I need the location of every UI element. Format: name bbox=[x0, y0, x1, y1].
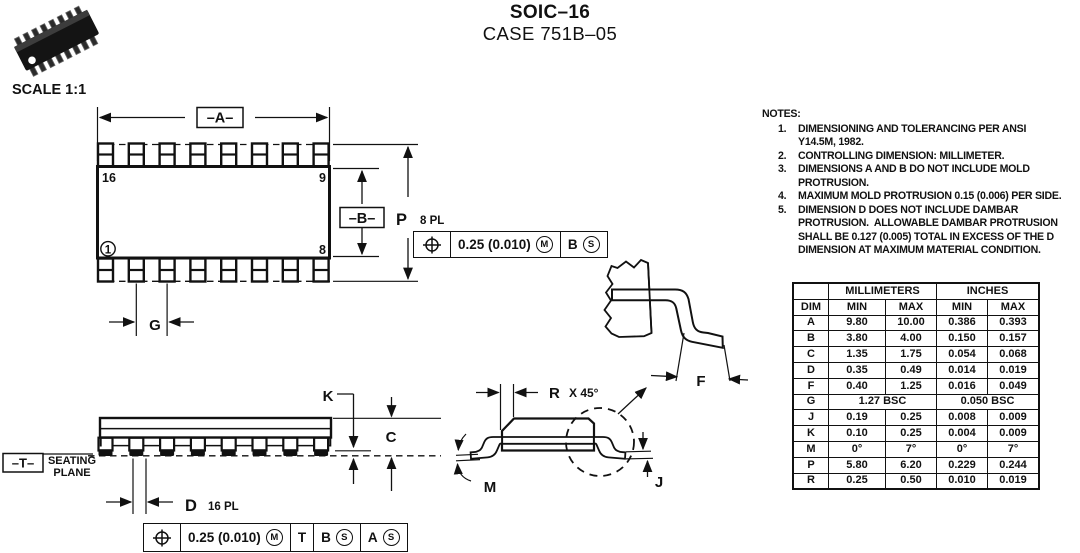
fcf-datum-b-cell: B S bbox=[561, 232, 607, 257]
table-header-units: MILLIMETERS INCHES bbox=[793, 283, 1039, 299]
side-view-drawing bbox=[3, 394, 441, 514]
note-text: DIMENSION D DOES NOT INCLUDE DAMBAR PROT… bbox=[798, 204, 1080, 258]
end-view-body bbox=[502, 419, 594, 451]
position-tolerance-icon bbox=[414, 232, 451, 257]
pin-1-label: 1 bbox=[105, 245, 112, 257]
dim-a-label: –A– bbox=[207, 111, 234, 127]
detail-leader-arrow bbox=[618, 388, 646, 414]
note-number: 4. bbox=[778, 190, 798, 204]
rfs-modifier-icon: S bbox=[583, 236, 600, 253]
datum-a: A bbox=[368, 530, 378, 545]
dim-g-label: G bbox=[149, 317, 161, 334]
notes-section: NOTES: 1.DIMENSIONING AND TOLERANCING PE… bbox=[762, 108, 1080, 258]
note-item: 4.MAXIMUM MOLD PROTRUSION 0.15 (0.006) P… bbox=[762, 190, 1080, 204]
note-item: 1.DIMENSIONING AND TOLERANCING PER ANSI … bbox=[762, 123, 1080, 150]
rfs-modifier-icon: S bbox=[383, 529, 400, 546]
pin-8-label: 8 bbox=[319, 243, 326, 257]
note-text: MAXIMUM MOLD PROTRUSION 0.15 (0.006) PER… bbox=[798, 190, 1080, 204]
table-row: F0.401.250.0160.049 bbox=[793, 378, 1039, 394]
rfs-modifier-icon: S bbox=[336, 529, 353, 546]
dim-j bbox=[626, 432, 653, 477]
notes-heading: NOTES: bbox=[762, 108, 1080, 122]
table-row: K0.100.250.0040.009 bbox=[793, 426, 1039, 442]
dim-f-label: F bbox=[696, 373, 705, 390]
dim-d bbox=[106, 459, 173, 515]
dim-m-label: M bbox=[484, 479, 497, 496]
dimension-table: MILLIMETERS INCHES DIM MIN MAX MIN MAX A… bbox=[792, 282, 1040, 490]
dim-k bbox=[335, 394, 371, 484]
table-row: R0.250.500.0100.019 bbox=[793, 473, 1039, 489]
position-tolerance-icon bbox=[144, 524, 181, 551]
fcf-pin-position: 0.25 (0.010) M B S bbox=[413, 231, 608, 258]
dim-r-suffix-label: X 45° bbox=[569, 386, 599, 400]
fcf-lead-position: 0.25 (0.010) M T B S A S bbox=[143, 523, 408, 552]
dim-j-label: J bbox=[655, 474, 663, 491]
col-dim: DIM bbox=[793, 299, 829, 315]
package-drawing-page: –A– 16 9 8 1 –B– P 8 PL G –T– K C D 16 P… bbox=[0, 0, 1080, 553]
datum-b: B bbox=[568, 237, 578, 252]
note-number: 5. bbox=[778, 204, 798, 258]
scale-label: SCALE 1:1 bbox=[12, 82, 86, 98]
note-number: 3. bbox=[778, 163, 798, 190]
col-mm-max: MAX bbox=[886, 299, 937, 315]
dim-c-label: C bbox=[386, 429, 397, 446]
fcf-datum-b-cell: B S bbox=[314, 524, 361, 551]
dim-r-label: R bbox=[549, 385, 560, 402]
dim-b-label: –B– bbox=[349, 211, 376, 227]
pin-16-label: 16 bbox=[102, 171, 116, 185]
tolerance-value: 0.25 (0.010) bbox=[188, 530, 261, 545]
note-item: 3.DIMENSIONS A AND B DO NOT INCLUDE MOLD… bbox=[762, 163, 1080, 190]
seating-plane-label: SEATING PLANE bbox=[45, 456, 99, 479]
table-row: C1.351.750.0540.068 bbox=[793, 347, 1039, 363]
dim-p-places-label: 8 PL bbox=[420, 215, 444, 227]
col-millimeters: MILLIMETERS bbox=[829, 283, 937, 299]
side-view-pins bbox=[99, 438, 329, 456]
table-row: B3.804.000.1500.157 bbox=[793, 331, 1039, 347]
col-in-max: MAX bbox=[988, 299, 1040, 315]
note-text: DIMENSIONS A AND B DO NOT INCLUDE MOLD P… bbox=[798, 163, 1080, 190]
datum-t-label: –T– bbox=[12, 456, 34, 471]
note-number: 2. bbox=[778, 150, 798, 164]
package-title: SOIC–16 bbox=[400, 2, 700, 23]
note-text: CONTROLLING DIMENSION: MILLIMETER. bbox=[798, 150, 1080, 164]
fcf-datum-t-cell: T bbox=[291, 524, 314, 551]
table-row: A9.8010.000.3860.393 bbox=[793, 315, 1039, 331]
package-3d-illustration bbox=[11, 4, 103, 79]
datum-t: T bbox=[298, 530, 306, 545]
fcf-tolerance-cell: 0.25 (0.010) M bbox=[181, 524, 291, 551]
side-view-body bbox=[100, 418, 331, 438]
fcf-datum-a-cell: A S bbox=[361, 524, 407, 551]
title-block: SOIC–16 CASE 751B–05 bbox=[400, 2, 700, 44]
dim-p-label: P bbox=[396, 211, 407, 229]
dim-k-label: K bbox=[323, 388, 334, 405]
mmc-modifier-icon: M bbox=[266, 529, 283, 546]
pin-9-label: 9 bbox=[319, 171, 326, 185]
col-in-min: MIN bbox=[937, 299, 988, 315]
table-row: M0°7°0°7° bbox=[793, 441, 1039, 457]
fcf-tolerance-cell: 0.25 (0.010) M bbox=[451, 232, 561, 257]
dim-d-places-label: 16 PL bbox=[208, 501, 239, 513]
datum-b: B bbox=[321, 530, 331, 545]
col-mm-min: MIN bbox=[829, 299, 886, 315]
table-row: D0.350.490.0140.019 bbox=[793, 362, 1039, 378]
end-view-right-lead bbox=[594, 437, 625, 459]
table-row: P5.806.200.2290.244 bbox=[793, 457, 1039, 473]
note-number: 1. bbox=[778, 123, 798, 150]
table-row: J0.190.250.0080.009 bbox=[793, 410, 1039, 426]
note-text: DIMENSIONING AND TOLERANCING PER ANSI Y1… bbox=[798, 123, 1080, 150]
col-inches: INCHES bbox=[937, 283, 1040, 299]
top-view-body bbox=[98, 167, 330, 259]
tolerance-value: 0.25 (0.010) bbox=[458, 237, 531, 252]
end-view-left-lead bbox=[471, 437, 502, 459]
table-header-minmax: DIM MIN MAX MIN MAX bbox=[793, 299, 1039, 315]
note-item: 5.DIMENSION D DOES NOT INCLUDE DAMBAR PR… bbox=[762, 204, 1080, 258]
mmc-modifier-icon: M bbox=[536, 236, 553, 253]
lead-detail-drawing bbox=[605, 260, 749, 381]
note-item: 2.CONTROLLING DIMENSION: MILLIMETER. bbox=[762, 150, 1080, 164]
case-number: CASE 751B–05 bbox=[400, 23, 700, 44]
table-row-bsc: G1.27 BSC0.050 BSC bbox=[793, 394, 1039, 410]
dim-d-label: D bbox=[185, 497, 197, 515]
